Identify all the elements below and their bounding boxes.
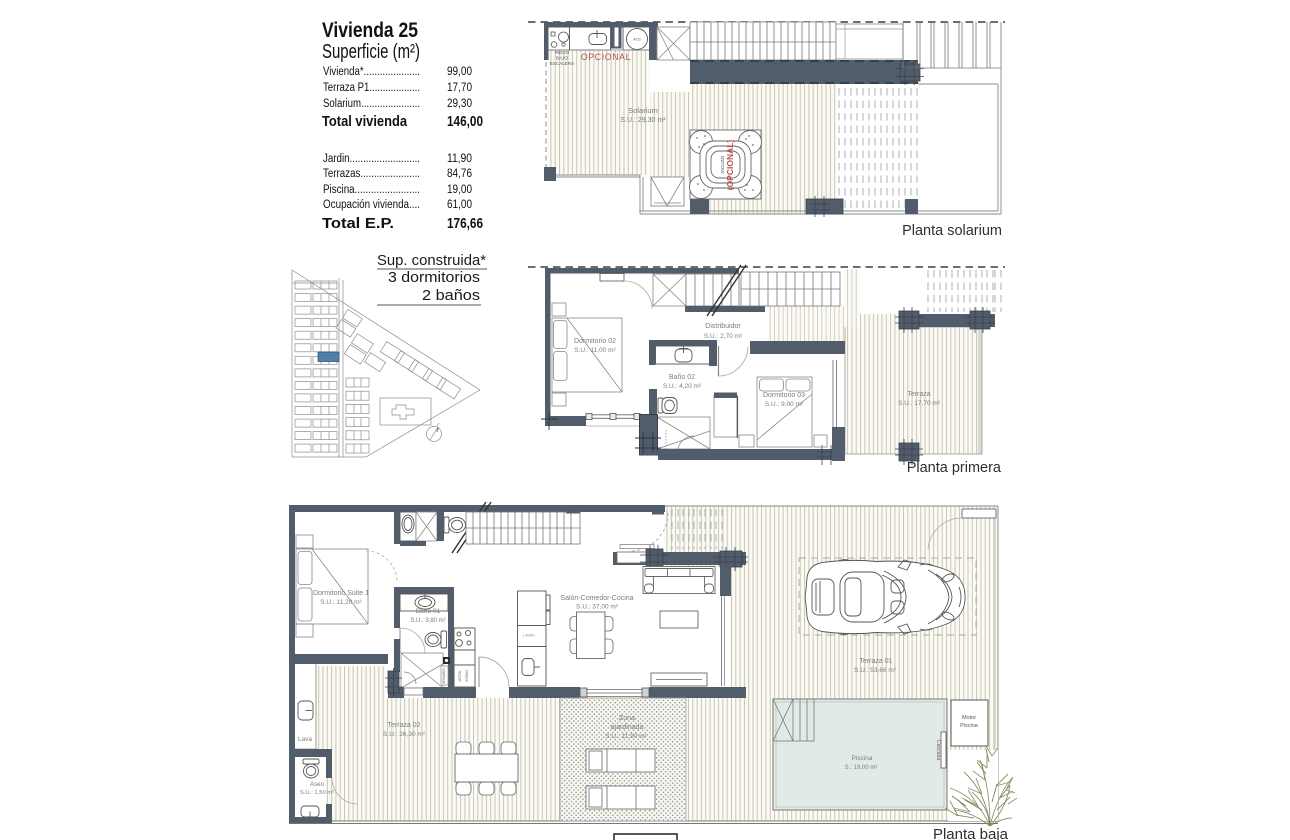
svg-text:Vivienda*.....................: Vivienda*..................... (323, 66, 420, 78)
svg-text:MICRO: MICRO (458, 670, 462, 681)
svg-text:Piscina: Piscina (960, 723, 979, 729)
svg-text:RIEGO: RIEGO (555, 50, 570, 55)
svg-text:Baño 02: Baño 02 (669, 374, 695, 381)
svg-text:Total vivienda: Total vivienda (322, 114, 408, 130)
svg-text:Terraza 01: Terraza 01 (859, 658, 892, 665)
svg-text:84,76: 84,76 (447, 168, 472, 180)
svg-text:11,90: 11,90 (447, 153, 472, 165)
svg-text:S.U.: 37,00 m²: S.U.: 37,00 m² (576, 604, 619, 611)
svg-text:Planta baja: Planta baja (933, 826, 1009, 840)
svg-text:S.U.: 2,70 m²: S.U.: 2,70 m² (704, 333, 743, 340)
svg-text:Planta primera: Planta primera (907, 460, 1002, 476)
svg-text:S.U.: 4,20 m²: S.U.: 4,20 m² (663, 383, 702, 390)
svg-text:S.U.: 11,20 m²: S.U.: 11,20 m² (320, 599, 362, 606)
svg-text:S.U.: 9,00 m²: S.U.: 9,00 m² (765, 401, 804, 408)
svg-text:(OPCIONAL): (OPCIONAL) (725, 140, 735, 191)
svg-text:ACS: ACS (633, 38, 641, 42)
svg-text:S.U.: 1,50 m²: S.U.: 1,50 m² (300, 790, 334, 796)
svg-text:Total E.P.: Total E.P. (322, 216, 394, 232)
svg-text:Piscina.......................: Piscina........................ (323, 184, 420, 196)
svg-text:29,30: 29,30 (447, 98, 472, 110)
svg-text:2 baños: 2 baños (422, 288, 480, 304)
svg-text:Zona: Zona (619, 715, 635, 722)
svg-text:146,00: 146,00 (447, 114, 483, 130)
svg-text:Terraza: Terraza (907, 391, 930, 398)
svg-text:ARMARIO: ARMARIO (442, 668, 446, 684)
svg-text:HORNO: HORNO (465, 670, 469, 682)
svg-text:ESCALERA: ESCALERA (550, 61, 575, 66)
svg-text:Distribuidor: Distribuidor (705, 323, 741, 330)
svg-text:Solarium: Solarium (628, 106, 658, 115)
svg-text:Jardin........................: Jardin.......................... (323, 153, 420, 165)
svg-text:Dormitorio 03: Dormitorio 03 (763, 392, 805, 399)
svg-text:S.U.: 3,80 m²: S.U.: 3,80 m² (410, 618, 445, 624)
svg-text:176,66: 176,66 (447, 216, 483, 232)
svg-text:Solarium......................: Solarium...................... (323, 98, 420, 110)
svg-text:Cascada: Cascada (935, 740, 941, 761)
svg-text:Dormitorio Suite 1: Dormitorio Suite 1 (313, 590, 369, 597)
svg-text:Piscina: Piscina (852, 755, 873, 762)
svg-text:BAJO: BAJO (556, 56, 568, 61)
svg-text:S.U.: 53,66 m²: S.U.: 53,66 m² (854, 667, 897, 674)
svg-text:OPCIONAL: OPCIONAL (581, 52, 631, 62)
svg-text:Baño 01: Baño 01 (416, 608, 441, 615)
svg-text:S.U.: 26,30 m²: S.U.: 26,30 m² (383, 731, 426, 738)
svg-text:17,70: 17,70 (447, 82, 472, 94)
svg-text:S.U.: 29,30 m²: S.U.: 29,30 m² (620, 117, 666, 124)
svg-text:LAVAV: LAVAV (523, 634, 535, 638)
svg-text:61,00: 61,00 (447, 199, 472, 211)
svg-text:S.U.: 11,90 m²: S.U.: 11,90 m² (605, 733, 647, 740)
svg-text:Ocupación vivienda....: Ocupación vivienda.... (323, 199, 420, 211)
svg-text:Vivienda 25: Vivienda 25 (322, 18, 418, 42)
svg-text:3 dormitorios: 3 dormitorios (388, 270, 480, 286)
svg-text:Terraza 02: Terraza 02 (387, 722, 420, 729)
svg-text:Motor: Motor (962, 715, 976, 721)
svg-text:99,00: 99,00 (447, 66, 472, 78)
svg-text:S.U.: 17,70 m²: S.U.: 17,70 m² (898, 400, 941, 407)
svg-text:Lava: Lava (298, 736, 312, 743)
svg-text:Planta solarium: Planta solarium (902, 223, 1002, 239)
svg-text:19,00: 19,00 (447, 184, 472, 196)
svg-text:S.U.: 11,00 m²: S.U.: 11,00 m² (574, 347, 616, 354)
svg-text:ajardinada: ajardinada (611, 724, 644, 731)
svg-text:Superficie (m²): Superficie (m²) (322, 41, 420, 63)
svg-text:Terraza P1...................: Terraza P1................... (323, 82, 420, 94)
svg-text:S.: 19,00 m²: S.: 19,00 m² (845, 765, 878, 771)
svg-text:Aseo: Aseo (310, 781, 325, 788)
svg-text:Salón-Comedor-Cocina: Salón-Comedor-Cocina (560, 595, 633, 602)
svg-text:Dormitorio 02: Dormitorio 02 (574, 338, 616, 345)
svg-text:Terrazas......................: Terrazas...................... (323, 168, 420, 180)
svg-text:Sup. construida*: Sup. construida* (377, 252, 486, 269)
